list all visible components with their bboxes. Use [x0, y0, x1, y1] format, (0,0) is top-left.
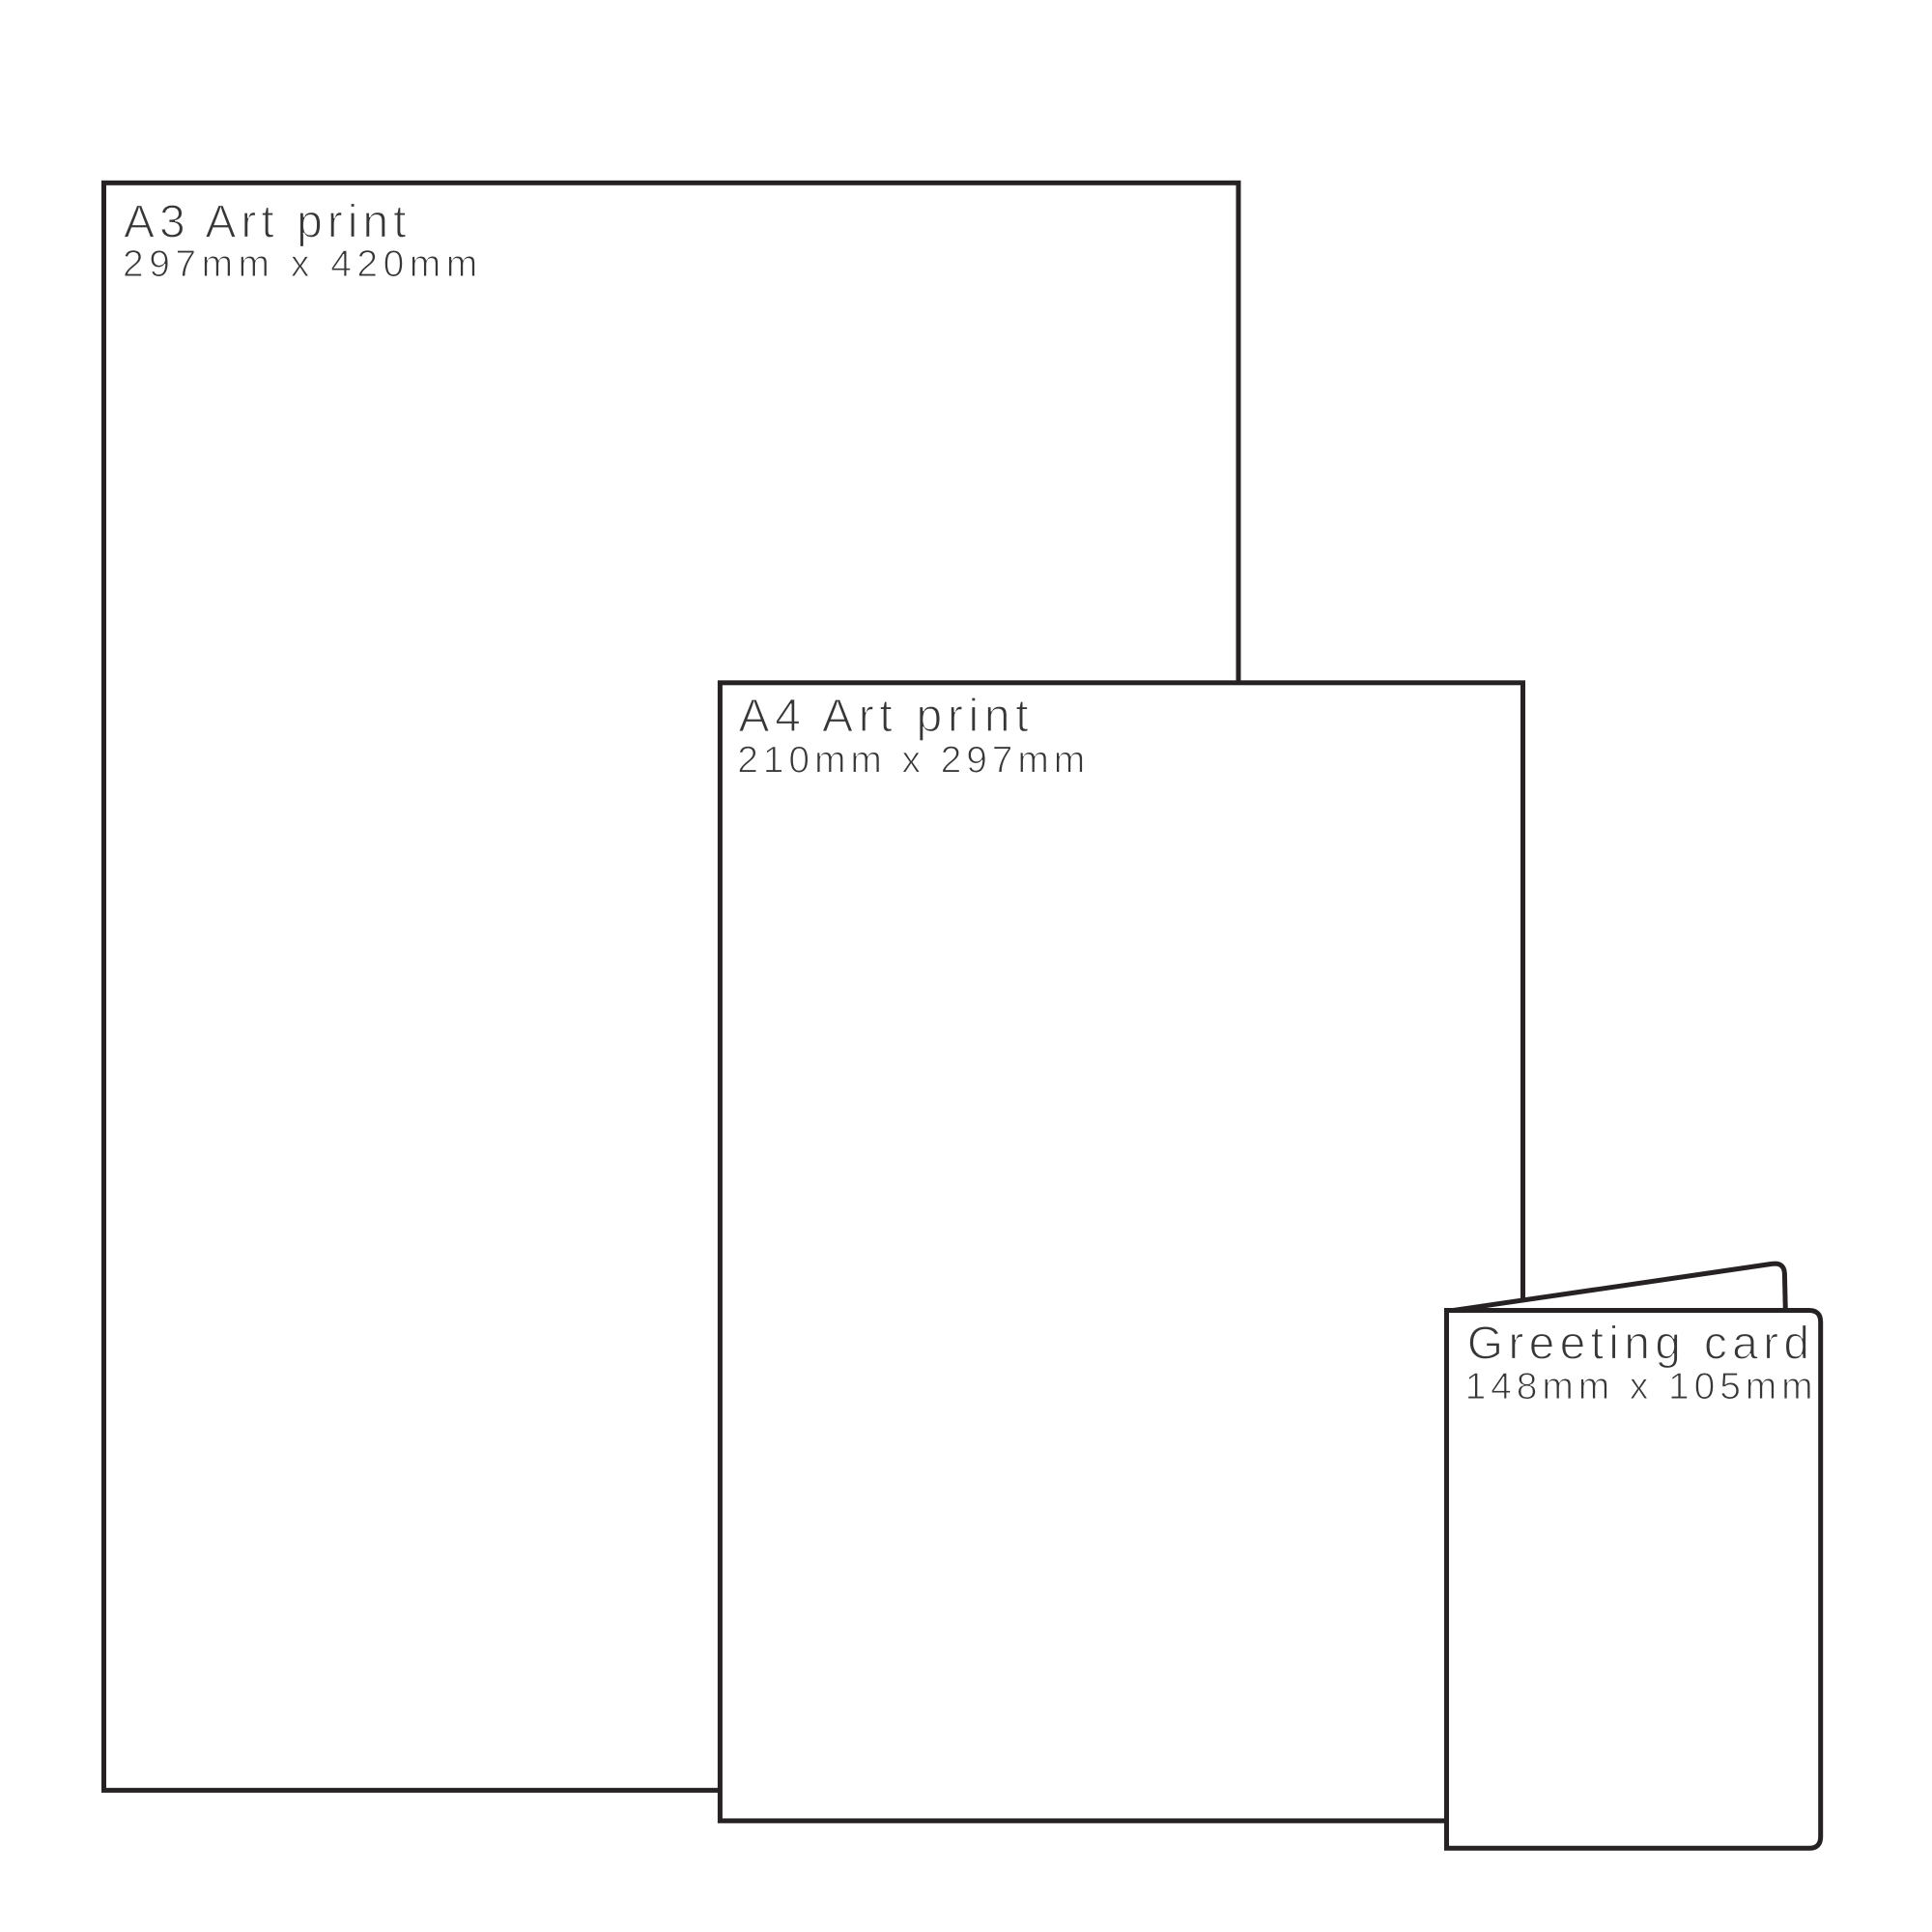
svg-text:A4 Art print: A4 Art print [739, 691, 1035, 742]
svg-text:Greeting card: Greeting card [1467, 1319, 1815, 1370]
svg-text:210mm x 297mm: 210mm x 297mm [737, 740, 1090, 781]
svg-text:297mm x 420mm: 297mm x 420mm [123, 243, 483, 285]
svg-text:A3 Art print: A3 Art print [124, 197, 411, 248]
svg-text:148mm x 105mm: 148mm x 105mm [1465, 1366, 1818, 1407]
